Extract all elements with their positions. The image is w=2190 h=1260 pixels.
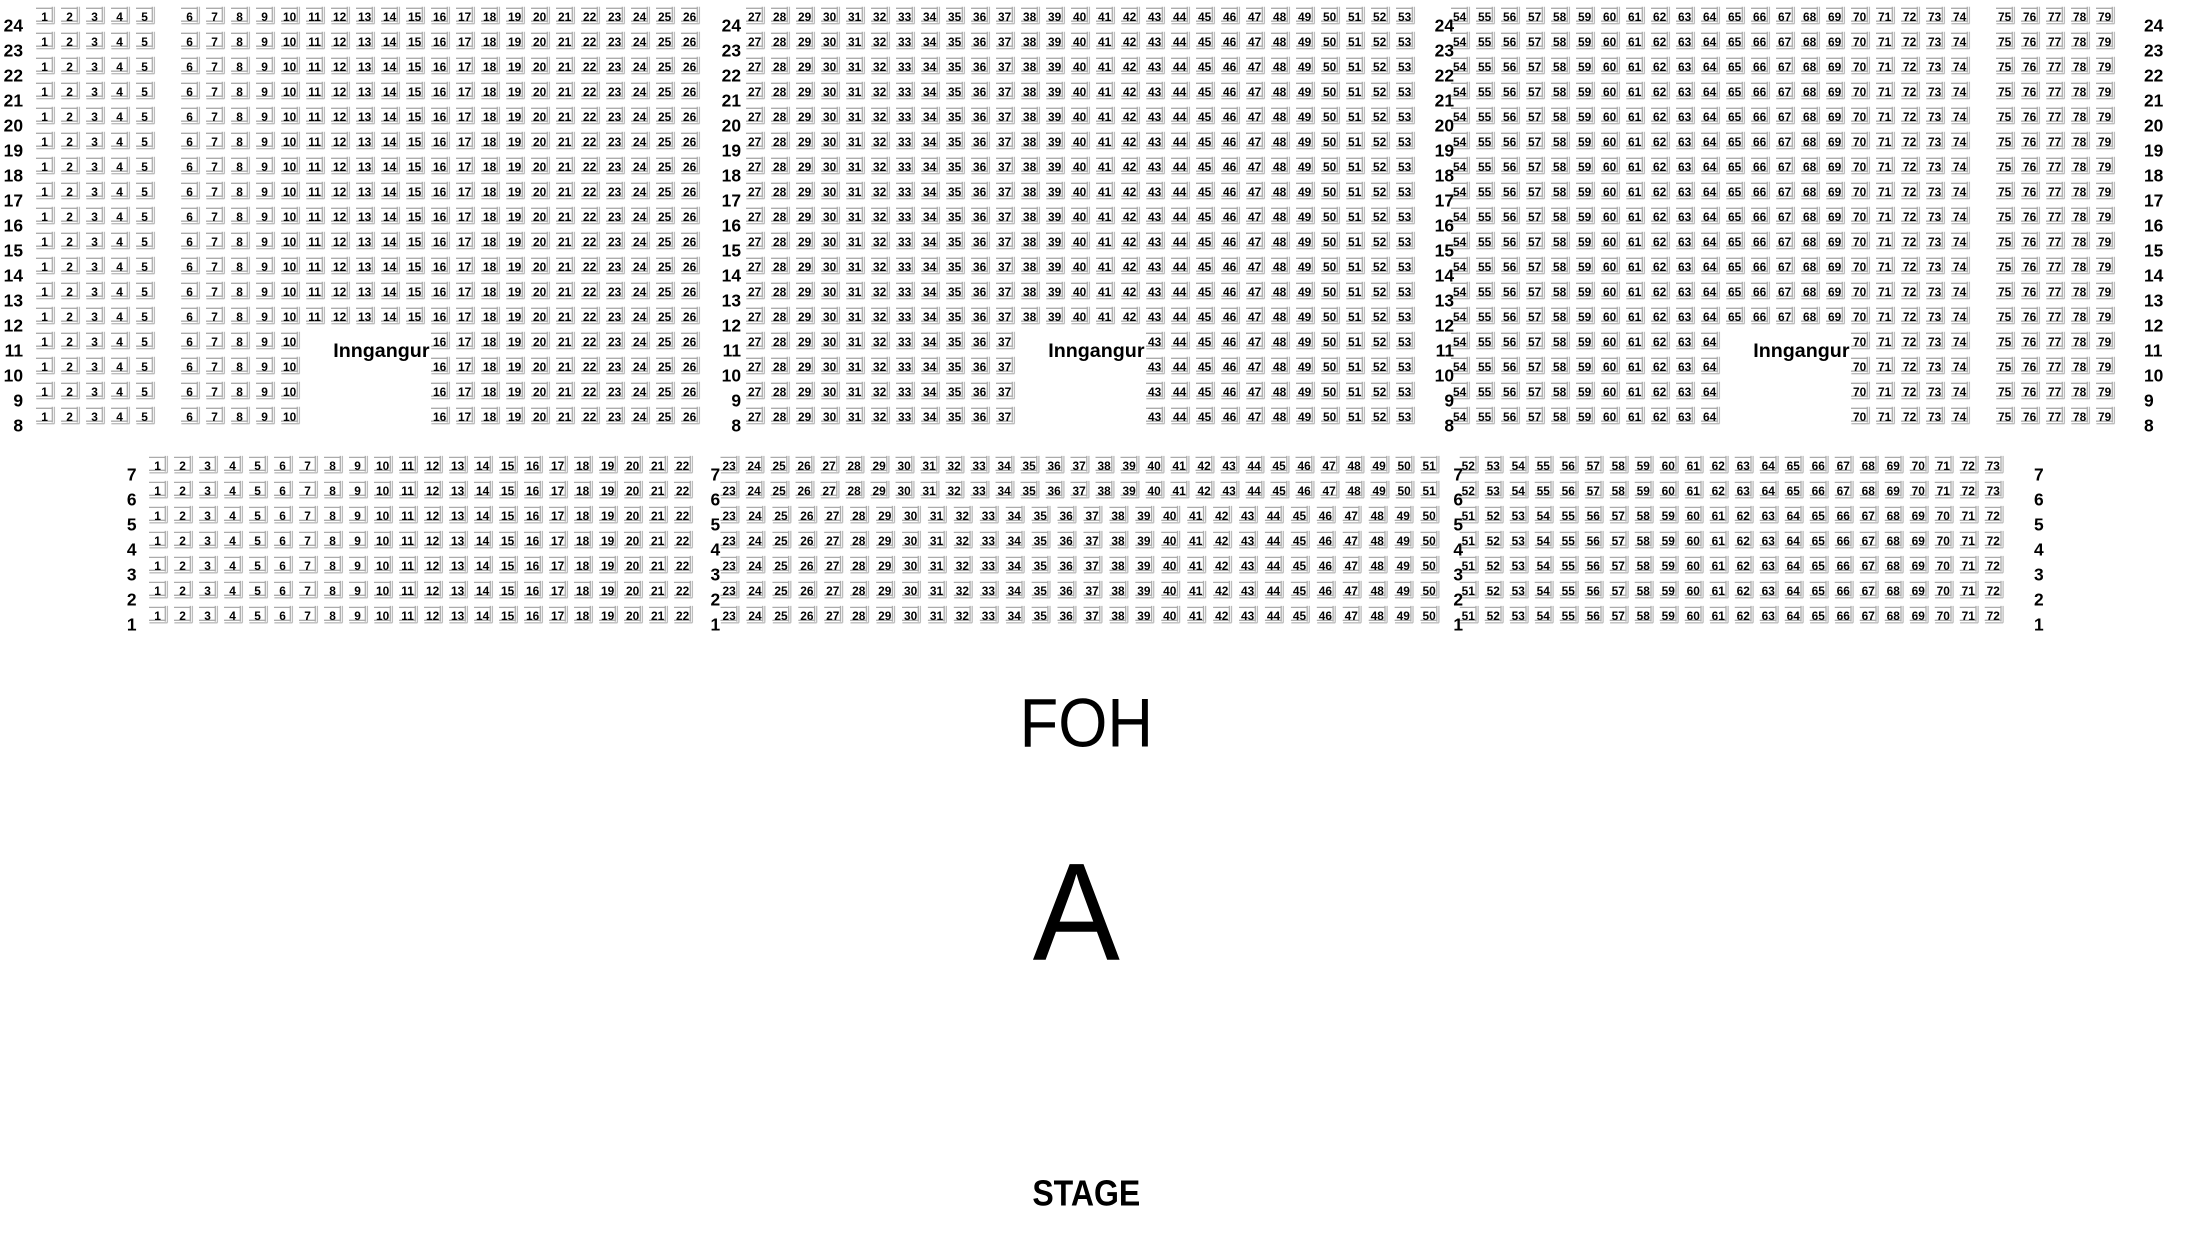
svg-text:52: 52 [1373, 160, 1387, 174]
svg-text:28: 28 [773, 260, 787, 274]
svg-text:42: 42 [1123, 60, 1137, 74]
svg-text:53: 53 [1398, 310, 1412, 324]
svg-text:46: 46 [1223, 410, 1237, 424]
svg-text:3: 3 [91, 135, 98, 149]
svg-text:71: 71 [1962, 534, 1976, 548]
svg-text:32: 32 [873, 135, 887, 149]
svg-text:68: 68 [1803, 160, 1817, 174]
svg-text:32: 32 [873, 285, 887, 299]
svg-text:72: 72 [1903, 60, 1917, 74]
svg-text:34: 34 [923, 85, 937, 99]
svg-text:35: 35 [948, 110, 962, 124]
svg-text:54: 54 [1453, 135, 1467, 149]
svg-text:21: 21 [558, 335, 572, 349]
svg-text:14: 14 [383, 210, 397, 224]
svg-text:61: 61 [1628, 35, 1642, 49]
svg-text:69: 69 [1828, 185, 1842, 199]
svg-text:19: 19 [601, 609, 615, 623]
svg-text:29: 29 [798, 310, 812, 324]
svg-text:79: 79 [2098, 10, 2112, 24]
svg-text:58: 58 [1553, 285, 1567, 299]
svg-text:45: 45 [1198, 360, 1212, 374]
svg-text:5: 5 [141, 135, 148, 149]
svg-text:8: 8 [236, 235, 243, 249]
svg-text:6: 6 [279, 609, 286, 623]
svg-text:59: 59 [1578, 60, 1592, 74]
svg-text:19: 19 [508, 185, 522, 199]
svg-text:8: 8 [236, 10, 243, 24]
svg-text:55: 55 [1478, 210, 1492, 224]
svg-text:48: 48 [1273, 210, 1287, 224]
svg-text:31: 31 [848, 335, 862, 349]
svg-text:22: 22 [722, 66, 741, 86]
svg-text:79: 79 [2098, 260, 2112, 274]
svg-text:24: 24 [1435, 16, 1455, 36]
svg-text:17: 17 [2144, 191, 2163, 211]
svg-text:66: 66 [1753, 60, 1767, 74]
svg-text:43: 43 [1241, 584, 1255, 598]
svg-text:11: 11 [308, 85, 321, 99]
svg-text:11: 11 [401, 534, 414, 548]
svg-text:5: 5 [141, 60, 148, 74]
svg-text:74: 74 [1953, 60, 1967, 74]
svg-text:27: 27 [748, 335, 762, 349]
svg-text:58: 58 [1553, 210, 1567, 224]
svg-text:40: 40 [1073, 285, 1087, 299]
svg-text:46: 46 [1223, 10, 1237, 24]
svg-text:40: 40 [1073, 160, 1087, 174]
svg-text:54: 54 [1453, 185, 1467, 199]
svg-text:22: 22 [583, 160, 597, 174]
svg-text:36: 36 [973, 160, 987, 174]
svg-text:54: 54 [1453, 310, 1467, 324]
svg-text:79: 79 [2098, 110, 2112, 124]
svg-text:17: 17 [1435, 191, 1454, 211]
svg-text:57: 57 [1528, 35, 1542, 49]
svg-text:45: 45 [1198, 85, 1212, 99]
svg-text:36: 36 [973, 335, 987, 349]
svg-text:48: 48 [1273, 335, 1287, 349]
svg-text:79: 79 [2098, 335, 2112, 349]
svg-text:16: 16 [526, 484, 540, 498]
svg-text:9: 9 [261, 110, 268, 124]
svg-text:42: 42 [1215, 509, 1229, 523]
svg-text:57: 57 [1612, 559, 1626, 573]
svg-text:41: 41 [1098, 210, 1112, 224]
svg-text:13: 13 [451, 609, 465, 623]
svg-text:68: 68 [1862, 484, 1876, 498]
svg-text:49: 49 [1298, 110, 1312, 124]
svg-text:20: 20 [626, 534, 640, 548]
svg-text:66: 66 [1837, 509, 1851, 523]
svg-text:76: 76 [2023, 385, 2037, 399]
svg-text:65: 65 [1812, 509, 1826, 523]
svg-text:61: 61 [1628, 335, 1642, 349]
svg-text:10: 10 [283, 185, 297, 199]
svg-text:17: 17 [458, 410, 472, 424]
svg-text:73: 73 [1928, 160, 1942, 174]
svg-text:10: 10 [283, 85, 297, 99]
svg-text:46: 46 [1223, 285, 1237, 299]
svg-text:73: 73 [1928, 335, 1942, 349]
svg-text:20: 20 [533, 260, 547, 274]
svg-text:23: 23 [722, 559, 736, 573]
svg-text:9: 9 [13, 391, 23, 411]
svg-text:37: 37 [1085, 509, 1099, 523]
svg-text:68: 68 [1887, 559, 1901, 573]
svg-text:43: 43 [1148, 360, 1162, 374]
svg-text:61: 61 [1628, 210, 1642, 224]
svg-text:67: 67 [1862, 559, 1876, 573]
svg-text:12: 12 [2144, 316, 2163, 336]
svg-text:74: 74 [1953, 160, 1967, 174]
svg-text:4: 4 [116, 85, 123, 99]
svg-text:4: 4 [116, 235, 123, 249]
svg-text:26: 26 [800, 534, 814, 548]
svg-text:30: 30 [823, 360, 837, 374]
svg-text:22: 22 [583, 85, 597, 99]
svg-text:74: 74 [1953, 135, 1967, 149]
svg-text:24: 24 [747, 484, 761, 498]
svg-text:59: 59 [1662, 509, 1676, 523]
svg-text:33: 33 [898, 85, 912, 99]
svg-text:72: 72 [1903, 260, 1917, 274]
svg-text:31: 31 [848, 160, 862, 174]
svg-text:32: 32 [873, 335, 887, 349]
svg-text:55: 55 [1478, 35, 1492, 49]
svg-text:53: 53 [1398, 210, 1412, 224]
svg-text:44: 44 [1173, 60, 1187, 74]
svg-text:25: 25 [774, 534, 788, 548]
svg-text:30: 30 [823, 60, 837, 74]
svg-text:72: 72 [1903, 185, 1917, 199]
svg-text:24: 24 [633, 35, 647, 49]
svg-text:72: 72 [1903, 410, 1917, 424]
svg-text:Inngangur: Inngangur [1753, 340, 1850, 362]
svg-text:48: 48 [1273, 385, 1287, 399]
svg-text:26: 26 [683, 310, 697, 324]
svg-text:12: 12 [426, 559, 440, 573]
svg-text:28: 28 [847, 459, 861, 473]
svg-text:8: 8 [236, 385, 243, 399]
svg-text:63: 63 [1678, 160, 1692, 174]
svg-text:69: 69 [1912, 559, 1926, 573]
svg-text:32: 32 [873, 60, 887, 74]
svg-text:4: 4 [116, 385, 123, 399]
svg-text:9: 9 [261, 285, 268, 299]
svg-text:61: 61 [1628, 360, 1642, 374]
svg-text:79: 79 [2098, 385, 2112, 399]
svg-text:26: 26 [800, 559, 814, 573]
svg-text:59: 59 [1662, 559, 1676, 573]
svg-text:33: 33 [898, 10, 912, 24]
svg-text:39: 39 [1048, 10, 1062, 24]
svg-text:36: 36 [973, 135, 987, 149]
svg-text:15: 15 [408, 210, 422, 224]
svg-text:57: 57 [1528, 385, 1542, 399]
svg-text:66: 66 [1753, 285, 1767, 299]
svg-text:58: 58 [1553, 410, 1567, 424]
svg-text:2: 2 [66, 385, 73, 399]
svg-text:27: 27 [748, 310, 762, 324]
svg-text:5: 5 [254, 534, 261, 548]
svg-text:10: 10 [283, 410, 297, 424]
svg-text:32: 32 [873, 385, 887, 399]
svg-text:15: 15 [722, 241, 742, 261]
svg-text:59: 59 [1578, 185, 1592, 199]
svg-text:30: 30 [897, 484, 911, 498]
svg-text:1: 1 [154, 584, 161, 598]
svg-text:48: 48 [1371, 534, 1385, 548]
svg-text:13: 13 [358, 260, 372, 274]
svg-text:18: 18 [483, 235, 497, 249]
svg-text:20: 20 [533, 185, 547, 199]
svg-text:52: 52 [1373, 385, 1387, 399]
svg-text:34: 34 [923, 35, 937, 49]
svg-text:20: 20 [626, 584, 640, 598]
svg-text:70: 70 [1853, 310, 1867, 324]
svg-text:46: 46 [1223, 235, 1237, 249]
svg-text:19: 19 [601, 534, 615, 548]
svg-text:33: 33 [982, 584, 996, 598]
svg-text:70: 70 [1912, 484, 1926, 498]
svg-text:26: 26 [683, 360, 697, 374]
svg-text:20: 20 [533, 60, 547, 74]
svg-text:6: 6 [279, 584, 286, 598]
svg-text:42: 42 [1215, 609, 1229, 623]
svg-text:63: 63 [1678, 210, 1692, 224]
svg-text:10: 10 [283, 35, 297, 49]
svg-text:34: 34 [923, 385, 937, 399]
svg-text:3: 3 [91, 160, 98, 174]
svg-text:49: 49 [1397, 609, 1411, 623]
svg-text:69: 69 [1828, 35, 1842, 49]
svg-text:3: 3 [91, 10, 98, 24]
svg-text:29: 29 [798, 285, 812, 299]
svg-text:62: 62 [1653, 160, 1667, 174]
svg-text:60: 60 [1603, 210, 1617, 224]
svg-text:7: 7 [304, 484, 311, 498]
svg-text:67: 67 [1778, 260, 1792, 274]
svg-text:51: 51 [1462, 609, 1476, 623]
svg-text:18: 18 [576, 484, 590, 498]
svg-text:33: 33 [898, 210, 912, 224]
svg-text:64: 64 [1703, 35, 1717, 49]
svg-text:4: 4 [229, 559, 236, 573]
svg-text:24: 24 [748, 509, 762, 523]
svg-text:33: 33 [898, 385, 912, 399]
svg-text:29: 29 [798, 360, 812, 374]
svg-text:43: 43 [1222, 484, 1236, 498]
svg-text:37: 37 [998, 160, 1012, 174]
svg-text:71: 71 [1878, 160, 1892, 174]
svg-text:16: 16 [433, 35, 447, 49]
svg-text:74: 74 [1953, 260, 1967, 274]
svg-text:25: 25 [658, 85, 672, 99]
svg-text:72: 72 [1903, 35, 1917, 49]
svg-text:54: 54 [1453, 60, 1467, 74]
svg-text:58: 58 [1553, 160, 1567, 174]
svg-text:34: 34 [923, 260, 937, 274]
svg-text:16: 16 [433, 185, 447, 199]
svg-text:26: 26 [683, 110, 697, 124]
svg-text:2: 2 [66, 360, 73, 374]
svg-text:26: 26 [797, 484, 811, 498]
svg-text:56: 56 [1503, 260, 1517, 274]
svg-text:39: 39 [1137, 534, 1151, 548]
svg-text:10: 10 [283, 335, 297, 349]
svg-text:12: 12 [333, 185, 347, 199]
svg-text:57: 57 [1612, 584, 1626, 598]
svg-text:8: 8 [236, 135, 243, 149]
svg-text:78: 78 [2073, 135, 2087, 149]
svg-text:62: 62 [1653, 185, 1667, 199]
svg-text:14: 14 [383, 260, 397, 274]
svg-text:67: 67 [1837, 459, 1851, 473]
svg-text:23: 23 [4, 41, 24, 61]
svg-text:33: 33 [982, 534, 996, 548]
svg-text:16: 16 [433, 235, 447, 249]
svg-text:43: 43 [1241, 509, 1255, 523]
svg-text:15: 15 [408, 160, 422, 174]
svg-text:36: 36 [1059, 534, 1073, 548]
svg-text:38: 38 [1023, 160, 1037, 174]
svg-text:5: 5 [2034, 515, 2044, 535]
svg-text:48: 48 [1273, 60, 1287, 74]
svg-text:34: 34 [923, 410, 937, 424]
svg-text:24: 24 [747, 459, 761, 473]
svg-text:56: 56 [1503, 185, 1517, 199]
svg-text:64: 64 [1703, 285, 1717, 299]
svg-text:62: 62 [1737, 534, 1751, 548]
svg-text:46: 46 [1297, 459, 1311, 473]
svg-text:67: 67 [1778, 35, 1792, 49]
svg-text:30: 30 [823, 185, 837, 199]
svg-text:79: 79 [2098, 410, 2112, 424]
svg-text:8: 8 [236, 210, 243, 224]
svg-text:1: 1 [711, 615, 721, 635]
svg-text:12: 12 [722, 316, 741, 336]
svg-text:15: 15 [408, 260, 422, 274]
svg-text:59: 59 [1662, 534, 1676, 548]
svg-text:65: 65 [1728, 85, 1742, 99]
svg-text:62: 62 [1653, 135, 1667, 149]
svg-text:10: 10 [376, 459, 390, 473]
svg-text:71: 71 [1878, 35, 1892, 49]
svg-text:52: 52 [1373, 410, 1387, 424]
svg-text:6: 6 [186, 235, 193, 249]
svg-text:49: 49 [1298, 310, 1312, 324]
svg-text:50: 50 [1323, 60, 1337, 74]
svg-text:6: 6 [186, 335, 193, 349]
svg-text:17: 17 [458, 285, 472, 299]
svg-text:3: 3 [91, 360, 98, 374]
svg-text:10: 10 [4, 366, 23, 386]
svg-text:52: 52 [1373, 260, 1387, 274]
svg-text:19: 19 [508, 60, 522, 74]
svg-text:55: 55 [1562, 584, 1576, 598]
svg-text:49: 49 [1298, 160, 1312, 174]
svg-text:2: 2 [66, 285, 73, 299]
svg-text:14: 14 [383, 185, 397, 199]
svg-text:5: 5 [254, 584, 261, 598]
svg-text:14: 14 [383, 285, 397, 299]
svg-text:61: 61 [1712, 509, 1726, 523]
svg-text:23: 23 [608, 385, 622, 399]
svg-text:71: 71 [1937, 459, 1951, 473]
svg-text:55: 55 [1478, 385, 1492, 399]
svg-text:52: 52 [1373, 360, 1387, 374]
svg-text:8: 8 [236, 410, 243, 424]
svg-text:27: 27 [748, 285, 762, 299]
svg-text:49: 49 [1397, 534, 1411, 548]
svg-text:38: 38 [1023, 60, 1037, 74]
svg-text:29: 29 [878, 609, 892, 623]
svg-text:69: 69 [1828, 10, 1842, 24]
svg-text:50: 50 [1323, 10, 1337, 24]
svg-text:61: 61 [1712, 609, 1726, 623]
svg-text:12: 12 [333, 85, 347, 99]
svg-text:38: 38 [1023, 10, 1037, 24]
svg-text:72: 72 [1987, 534, 2001, 548]
svg-text:44: 44 [1267, 509, 1281, 523]
svg-text:49: 49 [1397, 509, 1411, 523]
svg-text:78: 78 [2073, 335, 2087, 349]
svg-text:35: 35 [948, 360, 962, 374]
svg-text:44: 44 [1173, 160, 1187, 174]
svg-text:37: 37 [998, 35, 1012, 49]
svg-text:57: 57 [1528, 85, 1542, 99]
svg-text:1: 1 [41, 360, 48, 374]
svg-text:63: 63 [1678, 310, 1692, 324]
svg-text:34: 34 [923, 210, 937, 224]
svg-text:53: 53 [1398, 185, 1412, 199]
svg-text:21: 21 [558, 360, 572, 374]
svg-text:14: 14 [1435, 266, 1455, 286]
svg-text:70: 70 [1853, 35, 1867, 49]
svg-text:48: 48 [1273, 10, 1287, 24]
svg-text:55: 55 [1478, 235, 1492, 249]
svg-text:17: 17 [551, 459, 565, 473]
svg-text:4: 4 [229, 509, 236, 523]
svg-text:2: 2 [66, 85, 73, 99]
svg-text:7: 7 [211, 260, 218, 274]
svg-text:20: 20 [533, 335, 547, 349]
svg-text:35: 35 [1022, 484, 1036, 498]
svg-text:66: 66 [1753, 135, 1767, 149]
svg-text:24: 24 [633, 210, 647, 224]
svg-text:24: 24 [722, 16, 742, 36]
svg-text:47: 47 [1248, 210, 1262, 224]
svg-text:21: 21 [558, 135, 572, 149]
svg-text:31: 31 [930, 509, 944, 523]
svg-text:35: 35 [948, 410, 962, 424]
svg-text:73: 73 [1928, 260, 1942, 274]
svg-text:63: 63 [1678, 35, 1692, 49]
svg-text:68: 68 [1887, 609, 1901, 623]
svg-text:41: 41 [1098, 35, 1112, 49]
svg-text:45: 45 [1198, 335, 1212, 349]
svg-text:40: 40 [1163, 609, 1177, 623]
svg-text:72: 72 [1903, 360, 1917, 374]
svg-text:51: 51 [1348, 160, 1362, 174]
svg-text:67: 67 [1862, 509, 1876, 523]
svg-text:72: 72 [1987, 559, 2001, 573]
svg-text:43: 43 [1148, 210, 1162, 224]
svg-text:11: 11 [308, 285, 321, 299]
svg-text:36: 36 [1059, 559, 1073, 573]
svg-text:79: 79 [2098, 185, 2112, 199]
